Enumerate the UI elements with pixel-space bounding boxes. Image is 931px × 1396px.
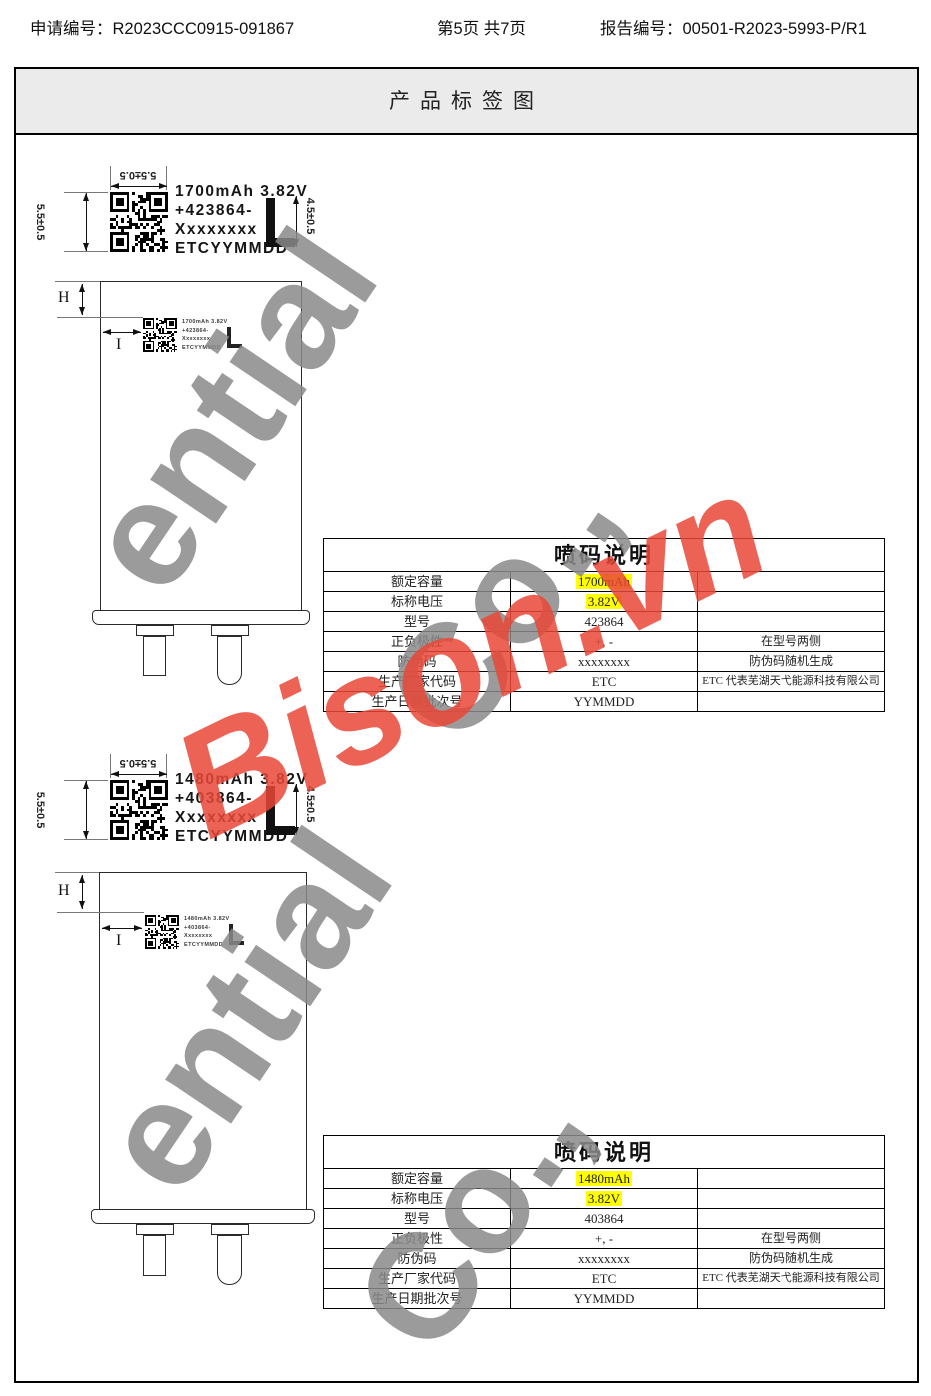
cell-note: 防伪码随机生成 xyxy=(698,652,884,671)
table-title: 喷码说明 xyxy=(324,539,884,571)
dim-i-label: I xyxy=(116,932,121,950)
cell-value: YYMMDD xyxy=(511,692,698,711)
cell-note xyxy=(698,592,884,611)
cell-name: 标称电压 xyxy=(324,1189,511,1208)
cell-note: 防伪码随机生成 xyxy=(698,1249,884,1268)
cell-name: 防伪码 xyxy=(324,652,511,671)
cell-name: 防伪码 xyxy=(324,1249,511,1268)
ext-line xyxy=(64,839,108,840)
dim-i-arrow xyxy=(102,928,142,929)
mini-line: +423864- xyxy=(182,327,228,336)
table-row: 额定容量 1480mAh xyxy=(324,1168,884,1188)
table-row: 正负极性 +, - 在型号两侧 xyxy=(324,1228,884,1248)
dim-top-label: 5.5±0.5 xyxy=(103,757,173,769)
cell-value: 423864 xyxy=(511,612,698,631)
dim-right-label: 4.5±0.5 xyxy=(304,769,316,839)
l-mark-small xyxy=(229,924,244,945)
cell-note: 在型号两侧 xyxy=(698,632,884,651)
terminal-right xyxy=(217,1235,242,1285)
cell-value: 1700mAh xyxy=(511,572,698,591)
mini-line: 1700mAh 3.82V xyxy=(182,318,228,327)
cell-note: 在型号两侧 xyxy=(698,1229,884,1248)
mini-line: Xxxxxxxx xyxy=(184,932,230,941)
code-description-table: 喷码说明 额定容量 1480mAh 标称电压 3.82V 型号 403864 正… xyxy=(323,1135,885,1309)
cell-value: 403864 xyxy=(511,1209,698,1228)
mini-line: ETCYYMMDD xyxy=(184,941,230,950)
table-row: 防伪码 xxxxxxxx 防伪码随机生成 xyxy=(324,1248,884,1268)
dim-left-arrow xyxy=(86,193,87,251)
terminal-right xyxy=(217,636,242,685)
terminal-collar-left xyxy=(136,625,174,636)
table-row: 生产厂家代码 ETC ETC 代表芜湖天弋能源科技有限公司 xyxy=(324,671,884,691)
table-row: 额定容量 1700mAh xyxy=(324,571,884,591)
qr-code-small xyxy=(145,915,179,949)
cell-name: 额定容量 xyxy=(324,1169,511,1188)
cell-value: YYMMDD xyxy=(511,1289,698,1308)
dim-right-arrow xyxy=(296,196,297,247)
code-description-table: 喷码说明 额定容量 1700mAh 标称电压 3.82V 型号 423864 正… xyxy=(323,538,885,712)
cell-value: ETC xyxy=(511,1269,698,1288)
mini-line: 1480mAh 3.82V xyxy=(184,915,230,924)
page-title: 产品标签图 xyxy=(16,69,917,135)
dim-h-arrow xyxy=(82,875,83,909)
cell-value: 3.82V xyxy=(511,592,698,611)
cell-note xyxy=(698,1189,884,1208)
battery-label-text: 1480mAh 3.82V +403864- Xxxxxxxx ETCYYMMD… xyxy=(184,915,230,949)
cell-name: 生产厂家代码 xyxy=(324,1269,511,1288)
table-row: 标称电压 3.82V xyxy=(324,1188,884,1208)
cell-name: 型号 xyxy=(324,1209,511,1228)
highlighted-value: 1480mAh xyxy=(576,1171,632,1186)
l-mark xyxy=(266,198,295,247)
ext-line xyxy=(57,912,144,913)
dim-h-label: H xyxy=(58,289,70,307)
terminal-collar-right xyxy=(211,625,249,636)
table-row: 标称电压 3.82V xyxy=(324,591,884,611)
mini-line: Xxxxxxxx xyxy=(182,335,228,344)
terminal-left xyxy=(143,636,166,676)
dim-right-arrow xyxy=(296,784,297,835)
dim-left-label: 5.5±0.5 xyxy=(34,775,46,845)
qr-code xyxy=(110,780,168,840)
cell-name: 型号 xyxy=(324,612,511,631)
qr-code-small xyxy=(143,318,177,352)
dim-top-label: 5.5±0.5 xyxy=(103,169,173,181)
dim-left-label: 5.5±0.5 xyxy=(34,187,46,257)
cell-name: 正负极性 xyxy=(324,1229,511,1248)
cell-value: 1480mAh xyxy=(511,1169,698,1188)
table-row: 型号 403864 xyxy=(324,1208,884,1228)
highlighted-value: 3.82V xyxy=(586,594,622,609)
highlighted-value: 1700mAh xyxy=(576,574,632,589)
cell-value: +, - xyxy=(511,632,698,651)
cell-value: ETC xyxy=(511,672,698,691)
battery-label-text: 1700mAh 3.82V +423864- Xxxxxxxx ETCYYMMD… xyxy=(182,318,228,352)
cell-name: 生产日期批次号 xyxy=(324,1289,511,1308)
ext-line xyxy=(55,872,99,873)
cell-note xyxy=(698,1169,884,1188)
cell-note xyxy=(698,1209,884,1228)
dim-i-label: I xyxy=(116,336,121,354)
cell-value: +, - xyxy=(511,1229,698,1248)
cell-note xyxy=(698,572,884,591)
dim-top-arrow xyxy=(111,774,167,775)
battery-bottom-cap xyxy=(91,1209,315,1224)
highlighted-value: 3.82V xyxy=(586,1191,622,1206)
cell-note: ETC 代表芜湖天弋能源科技有限公司 xyxy=(698,672,884,691)
cell-note xyxy=(698,1289,884,1308)
mini-line: +403864- xyxy=(184,924,230,933)
cell-name: 额定容量 xyxy=(324,572,511,591)
report-number: 报告编号：00501-R2023-5993-P/R1 xyxy=(600,18,867,40)
dim-left-arrow xyxy=(86,781,87,839)
cell-value: xxxxxxxx xyxy=(511,1249,698,1268)
table-title: 喷码说明 xyxy=(324,1136,884,1168)
cell-name: 生产日期批次号 xyxy=(324,692,511,711)
document-page: 申请编号：R2023CCC0915-091867 第5页 共7页 报告编号：00… xyxy=(0,0,931,1396)
mini-line: ETCYYMMDD xyxy=(182,344,228,353)
cell-note xyxy=(698,692,884,711)
table-row: 防伪码 xxxxxxxx 防伪码随机生成 xyxy=(324,651,884,671)
cell-name: 标称电压 xyxy=(324,592,511,611)
application-number: 申请编号：R2023CCC0915-091867 xyxy=(30,18,294,40)
cell-name: 生产厂家代码 xyxy=(324,672,511,691)
qr-code xyxy=(110,192,168,252)
l-mark xyxy=(266,786,295,835)
terminal-left xyxy=(143,1235,166,1276)
table-row: 型号 423864 xyxy=(324,611,884,631)
terminal-collar-left xyxy=(136,1224,174,1235)
dim-h-arrow xyxy=(82,284,83,315)
dim-top-arrow xyxy=(111,186,167,187)
dim-h-label: H xyxy=(58,882,70,900)
l-mark-small xyxy=(227,327,242,348)
ext-line xyxy=(55,281,100,282)
ext-line xyxy=(57,317,143,318)
battery-bottom-cap xyxy=(92,610,310,625)
dim-right-label: 4.5±0.5 xyxy=(304,181,316,251)
table-row: 生产日期批次号 YYMMDD xyxy=(324,1288,884,1308)
cell-note: ETC 代表芜湖天弋能源科技有限公司 xyxy=(698,1269,884,1288)
ext-line xyxy=(64,251,108,252)
page-indicator: 第5页 共7页 xyxy=(437,18,526,40)
table-row: 生产厂家代码 ETC ETC 代表芜湖天弋能源科技有限公司 xyxy=(324,1268,884,1288)
cell-note xyxy=(698,612,884,631)
terminal-collar-right xyxy=(211,1224,249,1235)
table-row: 生产日期批次号 YYMMDD xyxy=(324,691,884,711)
cell-value: xxxxxxxx xyxy=(511,652,698,671)
table-row: 正负极性 +, - 在型号两侧 xyxy=(324,631,884,651)
cell-name: 正负极性 xyxy=(324,632,511,651)
cell-value: 3.82V xyxy=(511,1189,698,1208)
dim-i-arrow xyxy=(103,332,141,333)
